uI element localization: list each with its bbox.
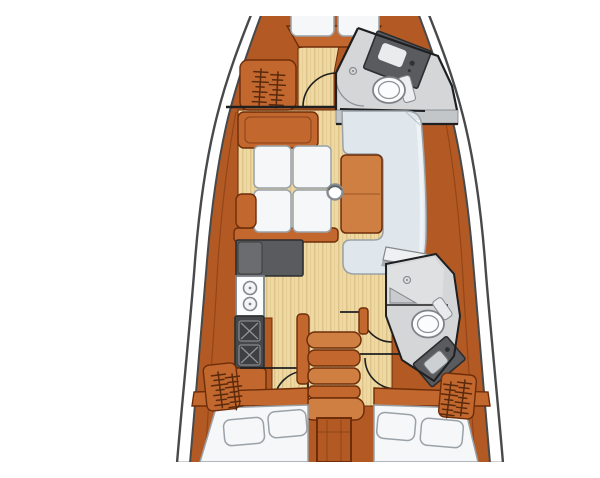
stair-rail-starboard xyxy=(359,308,368,334)
settee-cushion xyxy=(254,146,291,188)
shower-drain-dot xyxy=(406,279,408,281)
hanging-locker-cabinet-forward xyxy=(240,60,296,110)
companionway-step-landing xyxy=(304,398,364,420)
yacht-floorplan xyxy=(40,16,600,462)
v-berth-cushion-port xyxy=(291,16,334,36)
settee-cushion xyxy=(293,190,331,232)
pillow xyxy=(376,412,416,441)
salon-starboard xyxy=(328,109,427,274)
shower-drain-dot xyxy=(352,70,354,72)
settee-armrest xyxy=(236,194,256,228)
sink-drain-dot xyxy=(249,303,252,306)
pillow xyxy=(420,418,464,449)
sink-drain-dot xyxy=(249,287,252,290)
settee-cushion xyxy=(293,146,331,188)
toilet-bowl xyxy=(412,311,444,338)
forward-toilet xyxy=(373,75,416,103)
galley-counter-lid xyxy=(238,242,262,274)
stair-rail-port xyxy=(297,314,309,384)
companionway-step xyxy=(307,332,361,348)
pillow xyxy=(223,417,265,446)
companionway-step xyxy=(308,386,360,398)
pillow xyxy=(267,409,307,438)
companionway-step xyxy=(308,368,360,384)
engine-box xyxy=(317,418,351,462)
settee-cushion xyxy=(254,190,291,232)
companionway-step xyxy=(308,350,360,366)
